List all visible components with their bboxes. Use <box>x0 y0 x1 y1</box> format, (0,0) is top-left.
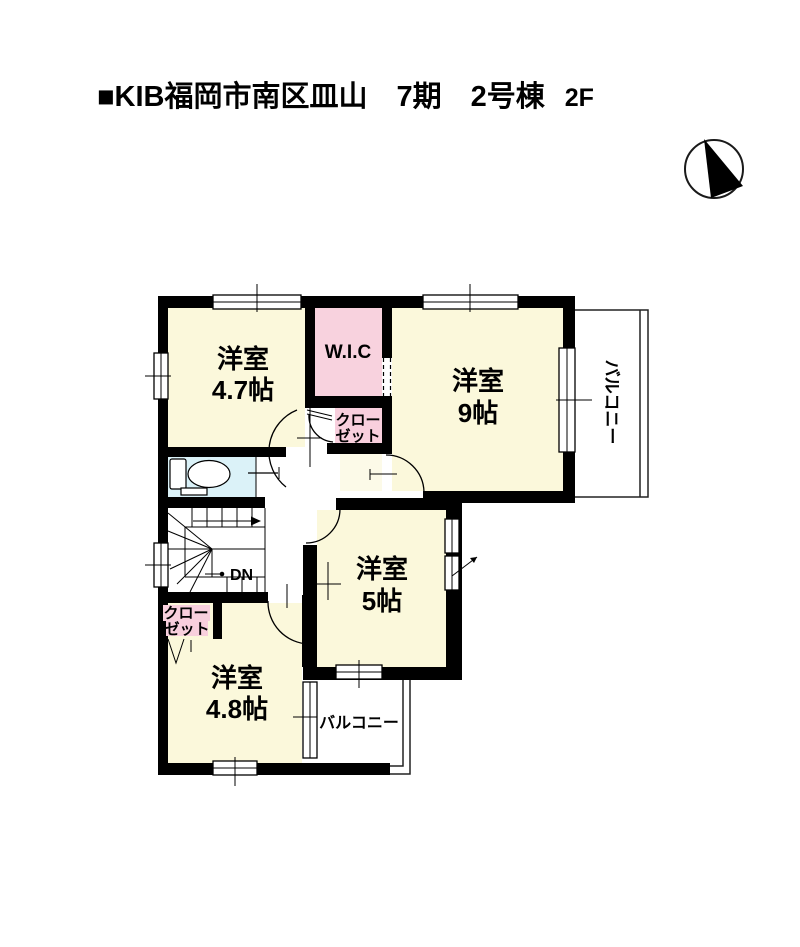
stairs-dn-dot <box>220 572 225 577</box>
north-arrow-icon <box>685 139 743 198</box>
closet-bottom-label-1: クロー <box>163 605 208 622</box>
floorplan-drawing: 洋室 4.7帖 洋室 9帖 洋室 5帖 洋室 4.8帖 W.I.C クロー ゼッ… <box>0 0 800 947</box>
closet-bottom-label-2: ゼット <box>164 620 209 638</box>
wall <box>303 545 317 667</box>
balcony-bottom-label: バルコニー <box>319 714 399 732</box>
wall <box>382 308 392 358</box>
wall <box>158 447 286 457</box>
wic-opening <box>382 358 392 396</box>
stairs-dn-label: DN <box>230 567 253 584</box>
wall <box>336 498 462 510</box>
closet-top-label-2: ゼット <box>335 427 380 445</box>
wall <box>305 308 315 400</box>
wall <box>213 603 222 639</box>
room-4-7-size: 4.7帖 <box>212 375 274 405</box>
wic-label: W.I.C <box>325 342 372 363</box>
wall <box>305 396 382 408</box>
wall <box>158 592 268 603</box>
toilet-bowl <box>188 461 230 488</box>
hallway-tint <box>340 454 382 491</box>
toilet-tank <box>170 459 186 489</box>
wall <box>158 763 390 775</box>
stairs-direction-arrow <box>251 517 261 526</box>
toilet-base <box>181 488 207 495</box>
room-4-7-name: 洋室 <box>217 344 269 374</box>
room-9-size: 9帖 <box>458 398 498 428</box>
closet-top-label-1: クロー <box>335 412 380 429</box>
floorplan-page: ■KIB福岡市南区皿山 7期 2号棟2F <box>0 0 800 947</box>
room-4-8-name: 洋室 <box>211 663 263 693</box>
room-9-name: 洋室 <box>452 366 504 396</box>
room-5-name: 洋室 <box>356 554 408 584</box>
room-4-8-size: 4.8帖 <box>206 694 268 724</box>
room-5-size: 5帖 <box>362 586 402 616</box>
wall <box>158 497 265 508</box>
balcony-right-label: バルコニー <box>602 360 621 445</box>
